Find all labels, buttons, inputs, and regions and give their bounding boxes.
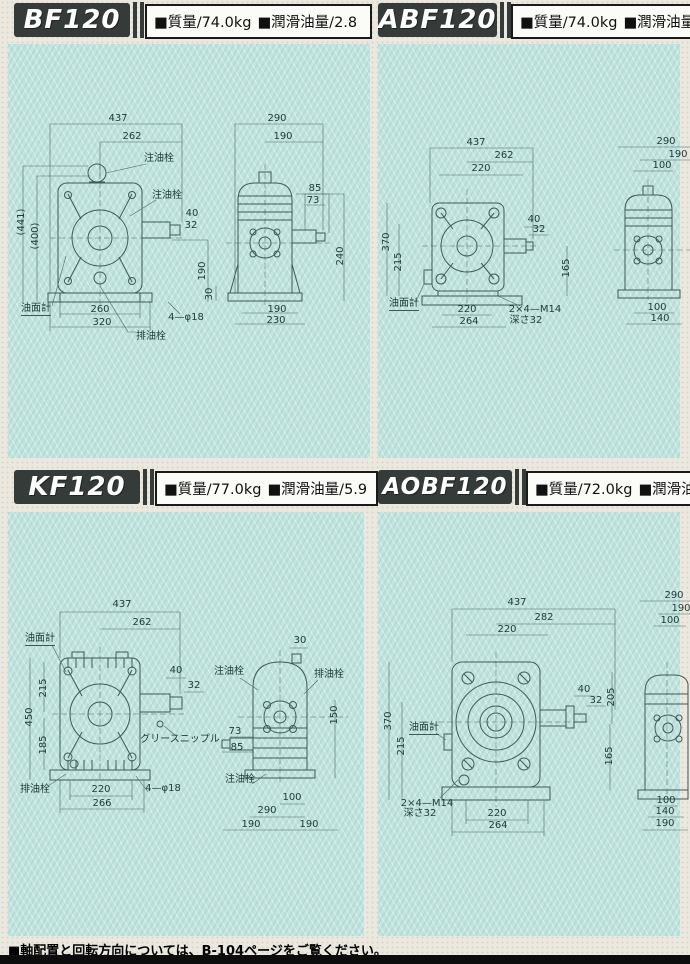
dim-label: 32 — [533, 225, 546, 235]
dim-label: 85 — [309, 184, 322, 194]
callout-oil-gauge: 油面計 — [409, 723, 439, 735]
drawing-aobf120: 437 282 220 370 215 油面計 40 32 205 165 2×… — [378, 512, 690, 938]
dim-label: 262 — [122, 132, 141, 142]
dim-label: 370 — [382, 232, 392, 251]
header-separator — [500, 2, 511, 38]
dim-label: 4—φ18 — [168, 313, 204, 323]
dim-label: 290 — [664, 591, 683, 601]
callout-oil-fill: 注油栓 — [152, 191, 182, 201]
dim-label: 290 — [656, 137, 675, 147]
dim-label: 190 — [267, 305, 286, 315]
dim-label: 32 — [185, 221, 198, 231]
technical-drawing-bf120 — [8, 44, 370, 458]
dim-label: 40 — [186, 209, 199, 219]
dim-label: 220 — [497, 625, 516, 635]
dim-label: 100 — [660, 616, 679, 626]
dim-label: 220 — [457, 305, 476, 315]
header-separator — [133, 2, 144, 38]
callout-oil-fill: 注油栓 — [214, 667, 244, 677]
drawing-kf120: 437 262 油面計 215 450 185 40 32 グリースニップル 排… — [8, 512, 370, 938]
dim-label: 140 — [655, 807, 674, 817]
callout-grease-nipple: グリースニップル — [140, 735, 220, 745]
dim-label: 深さ32 — [404, 809, 437, 819]
model-badge-abf120: ABF120 — [378, 3, 497, 37]
mass-spec: ■質量/72.0kg — [535, 478, 632, 499]
dim-label: 437 — [108, 114, 127, 124]
dim-label: 165 — [562, 258, 572, 277]
dim-label: 150 — [330, 705, 340, 724]
dim-label: (400) — [31, 223, 41, 250]
callout-oil-fill: 注油栓 — [144, 154, 174, 164]
dim-label: 262 — [132, 618, 151, 628]
dim-label: 437 — [507, 598, 526, 608]
dim-label: 140 — [650, 314, 669, 324]
drawing-bf120: 437 262 注油栓 注油栓 (441) (400) 40 32 190 26… — [8, 44, 370, 458]
spec-box-kf120: ■質量/77.0kg ■潤滑油量/5.9 — [155, 471, 378, 506]
dim-label: 282 — [534, 613, 553, 623]
header-separator — [515, 469, 526, 505]
dim-label: 190 — [668, 150, 687, 160]
spec-box-bf120: ■質量/74.0kg ■潤滑油量/2.8 — [145, 4, 372, 39]
oil-spec: ■潤滑油量/2.8 — [257, 11, 357, 32]
dim-label: 100 — [647, 303, 666, 313]
spec-box-aobf120: ■質量/72.0kg ■潤滑油量/2.8 — [526, 471, 690, 506]
dim-label: 165 — [605, 746, 615, 765]
mass-spec: ■質量/77.0kg — [164, 478, 261, 499]
dim-label: 220 — [487, 809, 506, 819]
catalog-page: { "page": { "footer_note": "■軸配置と回転方向につい… — [0, 0, 690, 964]
dim-label: 100 — [656, 796, 675, 806]
dim-label: 264 — [488, 821, 507, 831]
callout-oil-gauge: 油面計 — [21, 304, 51, 316]
spec-box-abf120: ■質量/74.0kg ■潤滑油量/2.8 — [511, 4, 690, 39]
header-separator — [143, 469, 154, 505]
model-badge-kf120: KF120 — [14, 470, 140, 504]
callout-drain: 排油栓 — [20, 785, 50, 795]
dim-label: 264 — [459, 317, 478, 327]
dim-label: 30 — [205, 288, 215, 301]
technical-drawing-kf120 — [8, 512, 370, 938]
callout-oil-fill: 注油栓 — [225, 775, 255, 785]
dim-label: 190 — [198, 261, 208, 280]
dim-label: 215 — [397, 736, 407, 755]
page-bottom-bar — [0, 955, 690, 964]
dim-label: 32 — [188, 681, 201, 691]
dim-label: 100 — [652, 161, 671, 171]
dim-label: 深さ32 — [510, 316, 543, 326]
model-badge-bf120: BF120 — [14, 3, 130, 37]
dim-label: 240 — [336, 246, 346, 265]
dim-label: 190 — [273, 132, 292, 142]
dim-label: 220 — [471, 164, 490, 174]
dim-label: 215 — [394, 252, 404, 271]
dim-label: 85 — [231, 743, 244, 753]
dim-label: 290 — [267, 114, 286, 124]
dim-label: 190 — [655, 819, 674, 829]
dim-label: 40 — [578, 685, 591, 695]
dim-label: 190 — [241, 820, 260, 830]
dim-label: 185 — [39, 735, 49, 754]
dim-label: 437 — [466, 138, 485, 148]
dim-label: 370 — [384, 711, 394, 730]
mass-spec: ■質量/74.0kg — [154, 11, 251, 32]
dim-label: 450 — [25, 707, 35, 726]
dim-label: 220 — [91, 785, 110, 795]
drawing-abf120: 437 262 220 370 215 40 32 165 油面計 220 26… — [378, 44, 690, 458]
dim-label: (441) — [17, 209, 27, 236]
dim-label: 215 — [39, 678, 49, 697]
dim-label: 290 — [257, 806, 276, 816]
dim-label: 320 — [92, 318, 111, 328]
oil-spec: ■潤滑油量/2.8 — [623, 11, 690, 32]
dim-label: 4—φ18 — [145, 784, 181, 794]
dim-label: 73 — [307, 196, 320, 206]
dim-label: 100 — [282, 793, 301, 803]
dim-label: 73 — [229, 727, 242, 737]
callout-drain: 排油栓 — [314, 670, 344, 680]
dim-label: 32 — [590, 696, 603, 706]
dim-label: 266 — [92, 799, 111, 809]
callout-oil-gauge: 油面計 — [25, 634, 55, 646]
model-badge-aobf120: AOBF120 — [378, 470, 512, 504]
technical-drawing-abf120 — [378, 44, 690, 458]
dim-label: 2×4—M14 — [509, 305, 561, 315]
callout-oil-gauge: 油面計 — [389, 299, 419, 311]
mass-spec: ■質量/74.0kg — [520, 11, 617, 32]
dim-label: 30 — [294, 636, 307, 646]
dim-label: 190 — [671, 604, 690, 614]
dim-label: 262 — [494, 151, 513, 161]
dim-label: 190 — [299, 820, 318, 830]
dim-label: 437 — [112, 600, 131, 610]
dim-label: 230 — [266, 316, 285, 326]
oil-spec: ■潤滑油量/2.8 — [638, 478, 690, 499]
dim-label: 260 — [90, 305, 109, 315]
dim-label: 205 — [607, 687, 617, 706]
callout-drain: 排油栓 — [136, 332, 166, 342]
dim-label: 40 — [170, 666, 183, 676]
oil-spec: ■潤滑油量/5.9 — [267, 478, 367, 499]
